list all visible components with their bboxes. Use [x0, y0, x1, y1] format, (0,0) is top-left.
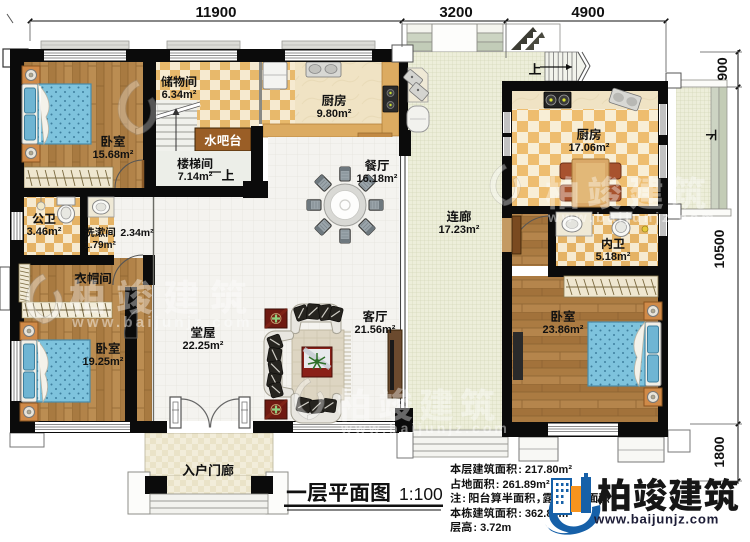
svg-text:23.86m²: 23.86m²: [543, 324, 584, 336]
svg-text:900: 900: [714, 57, 730, 81]
svg-text:10500: 10500: [711, 229, 727, 268]
svg-text:17.06m²: 17.06m²: [569, 142, 610, 154]
svg-text:: 3.72m: : 3.72m: [473, 522, 511, 534]
svg-text:www.baijunjz.com: www.baijunjz.com: [71, 314, 253, 331]
svg-text:5.18m²: 5.18m²: [596, 251, 631, 263]
svg-text::: :: [462, 493, 466, 505]
svg-text:19.25m²: 19.25m²: [83, 356, 124, 368]
svg-text:: 217.80m²: : 217.80m²: [518, 464, 572, 476]
svg-text:21.56m²: 21.56m²: [355, 324, 396, 336]
svg-text:22.25m²: 22.25m²: [183, 340, 224, 352]
svg-text:4900: 4900: [571, 4, 604, 21]
svg-text:9.80m²: 9.80m²: [317, 108, 352, 120]
svg-text:17.23m²: 17.23m²: [439, 224, 480, 236]
svg-text:www.baijunjz.com: www.baijunjz.com: [593, 512, 719, 527]
svg-text:1:100: 1:100: [399, 484, 443, 504]
svg-text:15.68m²: 15.68m²: [93, 149, 134, 161]
svg-text:1.79m²: 1.79m²: [84, 240, 116, 251]
svg-text:www.baijunjz.com: www.baijunjz.com: [547, 209, 717, 225]
svg-text:: 261.89m²: : 261.89m²: [496, 479, 550, 491]
svg-text:3.46m²: 3.46m²: [27, 226, 62, 238]
svg-text:6.34m²: 6.34m²: [162, 89, 197, 101]
svg-text:11900: 11900: [196, 4, 237, 21]
svg-text:16.18m²: 16.18m²: [357, 173, 398, 185]
svg-text:www.baijunjz.com: www.baijunjz.com: [340, 420, 510, 436]
svg-text:3200: 3200: [439, 4, 472, 21]
svg-text:1800: 1800: [711, 436, 727, 467]
svg-text:7.14m²: 7.14m²: [178, 171, 213, 183]
svg-text:2.34m²: 2.34m²: [120, 227, 154, 239]
